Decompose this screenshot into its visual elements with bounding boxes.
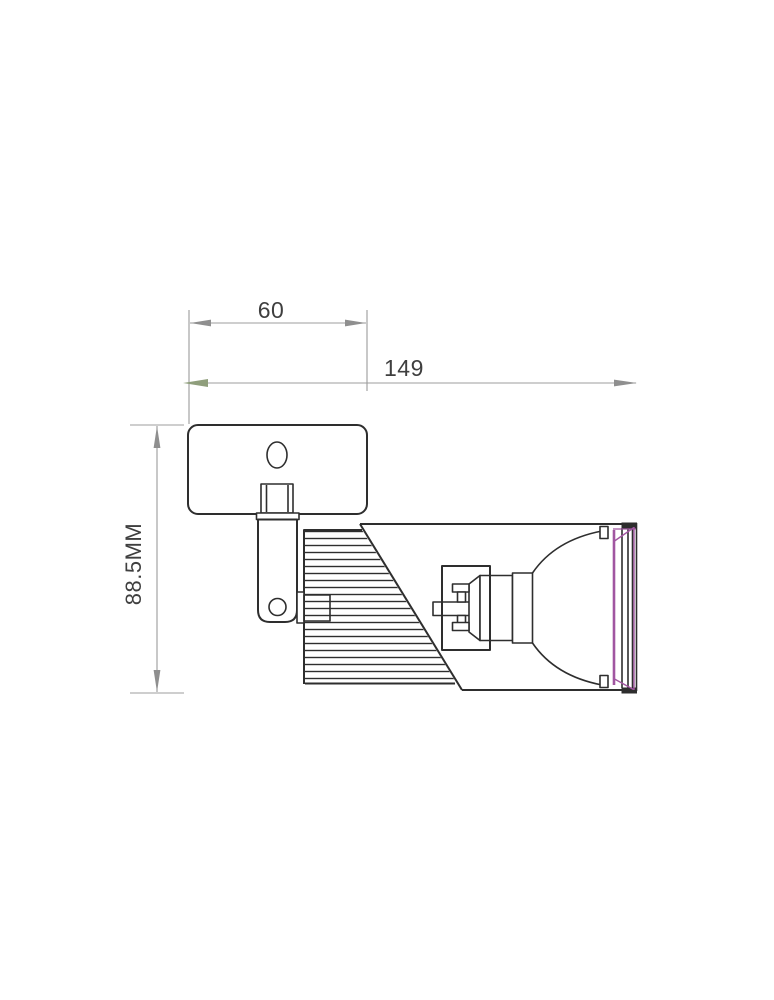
dim-885-arrow-top (154, 426, 161, 448)
fixture-drawing (188, 425, 637, 694)
mounting-slot-hole (267, 442, 287, 468)
pivot-hole (269, 599, 286, 616)
lamp-pin-top-stem (458, 592, 466, 602)
reflector-bottom-curve (533, 643, 603, 685)
lamp-pin-top-cap (453, 584, 470, 592)
drawing-canvas: 60 149 88.5MM (0, 0, 774, 1000)
lamp-neck (469, 576, 480, 641)
mounting-plate (188, 425, 367, 514)
dim-885-label: 88.5MM (121, 523, 146, 605)
lamp-envelope (480, 576, 513, 641)
dim-885-arrow-bottom (154, 670, 161, 692)
dim-60-arrow-left (190, 320, 211, 327)
dim-149-arrow-right (614, 380, 637, 387)
dim-60-arrow-right (345, 320, 366, 327)
reflector-top-curve (533, 531, 603, 573)
lamp-front-rim (513, 573, 533, 643)
knob-washer (297, 592, 304, 623)
lens-clip-top (600, 527, 608, 539)
dim-149-label: 149 (384, 355, 424, 381)
lens-clip-bottom (600, 676, 608, 688)
dim-149-arrow-left (183, 379, 208, 387)
lamp-pin-bottom-cap (453, 623, 470, 631)
front-rim-bar (628, 524, 633, 690)
spotlight-dimension-drawing: 60 149 88.5MM (0, 0, 774, 1000)
dim-60-label: 60 (258, 297, 285, 323)
